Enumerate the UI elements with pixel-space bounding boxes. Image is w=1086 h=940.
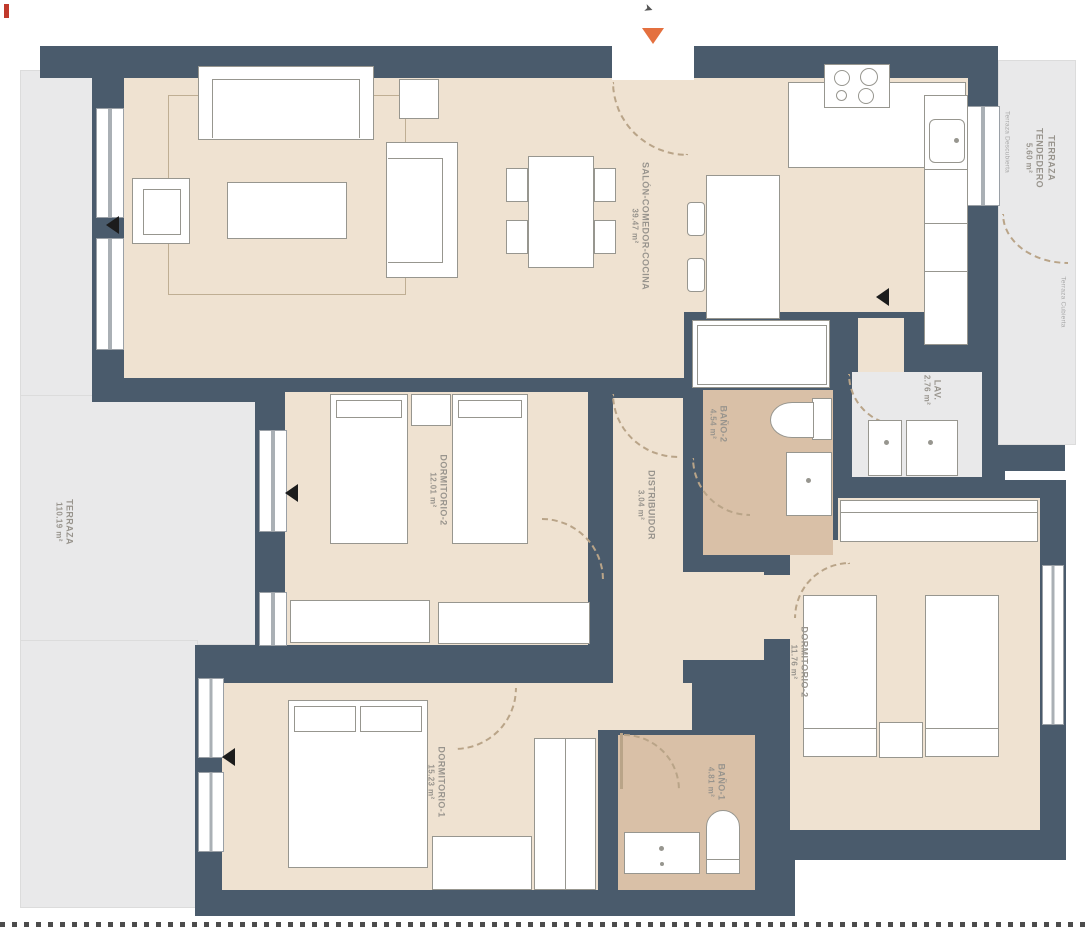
armchair <box>132 178 190 244</box>
room-name: DORMITORIO-2 <box>798 626 810 697</box>
bed-single <box>925 595 999 757</box>
entrance-marker-icon <box>642 28 664 44</box>
cooktop <box>824 64 890 108</box>
dining-chair <box>506 168 528 202</box>
room-area: 2.76 m² <box>921 375 932 405</box>
side-table <box>399 79 439 119</box>
appliance-knob <box>928 440 933 445</box>
bathtub <box>692 320 830 388</box>
burner <box>836 90 847 101</box>
room-label-bath1: BAÑO-1 4.81 m² <box>705 764 728 801</box>
terrace-left-upper <box>20 70 96 400</box>
sink-faucet <box>806 478 811 483</box>
door-leaf-bath1 <box>620 733 623 789</box>
room-name: TERRAZA <box>63 499 75 545</box>
room-area: 5.60 m² <box>1022 116 1033 200</box>
room-label-tendedero: TERRAZA TENDEDERO 5.60 m² <box>1022 116 1057 200</box>
coffee-table <box>227 182 347 239</box>
window-bedroom2r <box>1042 565 1064 725</box>
window-bedroom2l-2 <box>259 592 287 646</box>
closet <box>840 500 1038 542</box>
room-area: 4.54 m² <box>707 406 718 443</box>
window-marker-bedroom1 <box>222 748 235 766</box>
wall-top-left-stub <box>40 46 100 78</box>
pillow <box>336 400 402 418</box>
bed-single <box>803 595 877 757</box>
room-area: 4.81 m² <box>705 764 716 801</box>
pillow <box>360 706 422 732</box>
room-area: 39.47 m² <box>629 162 640 290</box>
room-label-hallway: DISTRIBUIDOR 3.04 m² <box>635 470 658 540</box>
room-area: 12.01 m² <box>427 454 438 525</box>
sink-drain <box>660 862 664 866</box>
annotation-text: Terraza Descubierta <box>1002 111 1011 173</box>
terrace-left-lower <box>20 640 198 908</box>
nightstand <box>879 722 923 758</box>
wardrobe <box>432 836 532 890</box>
room-name: DISTRIBUIDOR <box>645 470 657 540</box>
burner <box>860 68 878 86</box>
room-area: 11.76 m² <box>788 626 799 697</box>
floor-laundry-doorway <box>858 318 904 374</box>
dining-chair <box>594 220 616 254</box>
dryer <box>906 420 958 476</box>
room-name: BAÑO-1 <box>715 764 727 801</box>
floor-hallway-east <box>613 572 764 660</box>
burner <box>834 70 850 86</box>
room-label-laundry: LAV. 2.76 m² <box>921 375 944 405</box>
window-marker-kitchen <box>876 288 889 306</box>
washer <box>868 420 902 476</box>
room-label-bath2: BAÑO-2 4.54 m² <box>707 406 730 443</box>
window-marker-bedroom2l <box>285 484 298 502</box>
dining-chair <box>506 220 528 254</box>
vanity-sink <box>624 832 700 874</box>
entrance-door-gap <box>612 46 694 80</box>
window-bedroom1-1 <box>198 678 224 758</box>
window-bedroom1-2 <box>198 772 224 852</box>
island-stool <box>687 258 705 292</box>
room-name: SALÓN-COMEDOR-COCINA <box>639 162 651 290</box>
wardrobe <box>290 600 430 643</box>
room-label-living: SALÓN-COMEDOR-COCINA 39.47 m² <box>629 162 652 290</box>
kitchen-sink <box>929 119 965 163</box>
window-bedroom2l-1 <box>259 430 287 532</box>
room-area: 3.04 m² <box>635 470 646 540</box>
dining-chair <box>594 168 616 202</box>
toilet-tank <box>812 398 832 440</box>
pillow <box>458 400 522 418</box>
sink-faucet <box>659 846 664 851</box>
sink-faucet <box>954 138 959 143</box>
entrance-direction-icon: ➤ <box>642 1 655 16</box>
crop-mark <box>4 4 9 18</box>
island-stool <box>687 202 705 236</box>
bathroom-sink <box>786 452 832 516</box>
nightstand <box>411 394 451 426</box>
annotation-text: Terraza Cubierta <box>1058 276 1067 327</box>
sofa-vertical <box>386 142 458 278</box>
room-label-bedroom2r: DORMITORIO-2 11.76 m² <box>788 626 811 697</box>
room-area: 15.23 m² <box>425 746 436 817</box>
room-name: TERRAZA TENDEDERO <box>1033 116 1057 200</box>
window-marker-living <box>106 216 119 234</box>
toilet-bowl <box>770 402 814 438</box>
burner <box>858 88 874 104</box>
room-name: BAÑO-2 <box>717 406 729 443</box>
room-area: 110.19 m² <box>53 499 64 545</box>
annotation-terraza-cubierta: Terraza Cubierta <box>1058 276 1067 327</box>
floor-plan: ➤ SALÓN-COMEDOR-COCINA 39.47 m² DORMITOR… <box>0 0 1086 940</box>
section-cut-line <box>0 922 1086 927</box>
pillow <box>294 706 356 732</box>
annotation-terraza-descubierta: Terraza Descubierta <box>1002 111 1011 173</box>
wall-tendedero-bottom <box>985 445 1065 471</box>
room-name: DORMITORIO-2 <box>437 454 449 525</box>
room-label-bedroom2l: DORMITORIO-2 12.01 m² <box>427 454 450 525</box>
sofa-large <box>198 66 374 140</box>
appliance-knob <box>884 440 889 445</box>
closet-column <box>534 738 596 890</box>
wardrobe <box>438 602 590 644</box>
toilet <box>706 810 740 874</box>
dining-table <box>528 156 594 268</box>
window-living-1 <box>96 108 124 218</box>
window-living-2 <box>96 238 124 350</box>
window-kitchen <box>966 106 1000 206</box>
room-label-bedroom1: DORMITORIO-1 15.23 m² <box>425 746 448 817</box>
room-label-terrace: TERRAZA 110.19 m² <box>53 499 76 545</box>
room-name: DORMITORIO-1 <box>435 746 447 817</box>
kitchen-island <box>706 175 780 319</box>
room-name: LAV. <box>931 375 943 405</box>
